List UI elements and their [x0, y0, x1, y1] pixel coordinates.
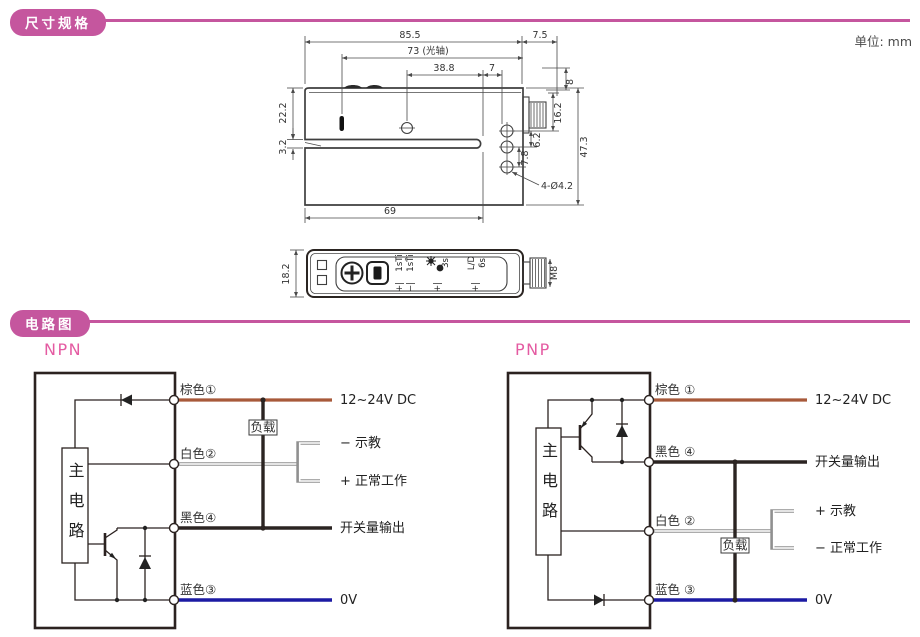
- dim-22-2: 22.2: [278, 102, 289, 123]
- dim-85-5: 85.5: [399, 30, 420, 41]
- pnp-interior-wiring: [548, 398, 644, 606]
- dim-6-2: 6.2: [532, 132, 543, 147]
- ld-plus-mark: +|: [471, 282, 481, 292]
- timer-label-2: 1sT̄i: [404, 254, 416, 271]
- dim-47-3: 47.3: [579, 136, 590, 157]
- dim-73-optical-axis: 73 (光轴): [407, 45, 449, 57]
- main-circuit-label: 主电路: [539, 442, 558, 532]
- npn-power-label: 12~24V DC: [340, 393, 416, 408]
- timer-minus-mark: −|: [406, 282, 416, 292]
- section-title-circuit: 电路图: [10, 310, 90, 337]
- cross-adjuster-icon: [342, 263, 363, 284]
- indicator-window-icon: [340, 116, 345, 131]
- dim-3-2: 3.2: [278, 139, 289, 154]
- npn-teach-label: − 示教: [340, 435, 381, 451]
- npn-gnd-label: 0V: [340, 593, 357, 608]
- timer-label-1: 1sTi: [395, 254, 405, 271]
- m8-connector-bottom: [523, 258, 546, 288]
- pnp-output-label: 开关量输出: [815, 454, 880, 470]
- dim-18-2: 18.2: [281, 263, 292, 284]
- npn-wire-black-label: 黑色④: [180, 510, 216, 525]
- diode-icon: [121, 395, 132, 406]
- side-view-drawing: 85.5 7.5 73 (光轴) 38.8 7 8 16.2 6.2 7.8 4…: [278, 30, 590, 223]
- led-window: [318, 261, 327, 270]
- dim-8: 8: [565, 79, 576, 85]
- pnp-gnd-label: 0V: [815, 593, 832, 608]
- load-label: 负载: [722, 538, 748, 553]
- sens-time-label: 3s: [441, 258, 451, 268]
- dim-69: 69: [384, 206, 396, 217]
- dim-m8: M8: [549, 266, 560, 280]
- pnp-wire-black-label: 黑色 ④: [655, 444, 695, 459]
- pnp-wires: 负载: [654, 400, 808, 603]
- ld-time-label: 6s: [478, 258, 488, 268]
- pnp-circuit: 主电路: [508, 373, 891, 628]
- npn-wire-white-label: 白色②: [180, 446, 216, 461]
- bottom-view-drawing: 1sTi 1sT̄i +| −| 3s +| L/D 6s +|: [281, 250, 560, 297]
- main-circuit-label: 主电路: [66, 462, 85, 552]
- npn-output-label: 开关量输出: [340, 520, 405, 536]
- mount-bump-icon: [344, 85, 362, 88]
- slot-adjuster-icon: [367, 262, 388, 284]
- section-rule-dimensions: [60, 19, 910, 22]
- pnp-normal-label: − 正常工作: [815, 541, 882, 556]
- dim-7-5: 7.5: [532, 30, 547, 41]
- small-dim-arrows: [293, 128, 539, 185]
- section-title-dimensions: 尺寸规格: [10, 9, 106, 36]
- m8-connector-side: [523, 97, 546, 133]
- dim-holes-4xd4-2: 4-Ø4.2: [541, 181, 573, 192]
- pnp-power-label: 12~24V DC: [815, 393, 891, 408]
- npn-wire-blue-label: 蓝色③: [180, 582, 216, 597]
- load-label: 负载: [250, 420, 276, 435]
- technical-drawing-canvas: 85.5 7.5 73 (光轴) 38.8 7 8 16.2 6.2 7.8 4…: [0, 0, 920, 637]
- mount-bump-icon: [366, 85, 383, 88]
- npn-circuit: 主电路: [35, 373, 416, 628]
- led-window: [318, 276, 327, 285]
- timer-plus-mark: +|: [395, 282, 405, 292]
- npn-interior-wiring: [75, 394, 169, 602]
- dim-16-2: 16.2: [553, 102, 564, 123]
- npn-wire-brown-label: 棕色①: [180, 382, 216, 397]
- sens-plus-mark: +|: [433, 282, 443, 292]
- diode-icon: [139, 557, 151, 569]
- npn-wires: 负载: [179, 397, 333, 600]
- pnp-wire-blue-label: 蓝色 ③: [655, 582, 695, 597]
- diode-icon: [616, 425, 628, 437]
- npn-normal-label: + 正常工作: [340, 474, 407, 489]
- dim-7: 7: [489, 63, 495, 74]
- pnp-wire-brown-label: 棕色 ①: [655, 382, 695, 397]
- diode-icon: [594, 595, 604, 606]
- section-rule-circuit: [55, 320, 910, 323]
- ld-label: L/D: [467, 255, 477, 270]
- pnp-teach-label: + 示教: [815, 503, 856, 519]
- dim-38-8: 38.8: [433, 63, 454, 74]
- dim-7-8: 7.8: [520, 150, 531, 165]
- pnp-wire-white-label: 白色 ②: [655, 513, 695, 528]
